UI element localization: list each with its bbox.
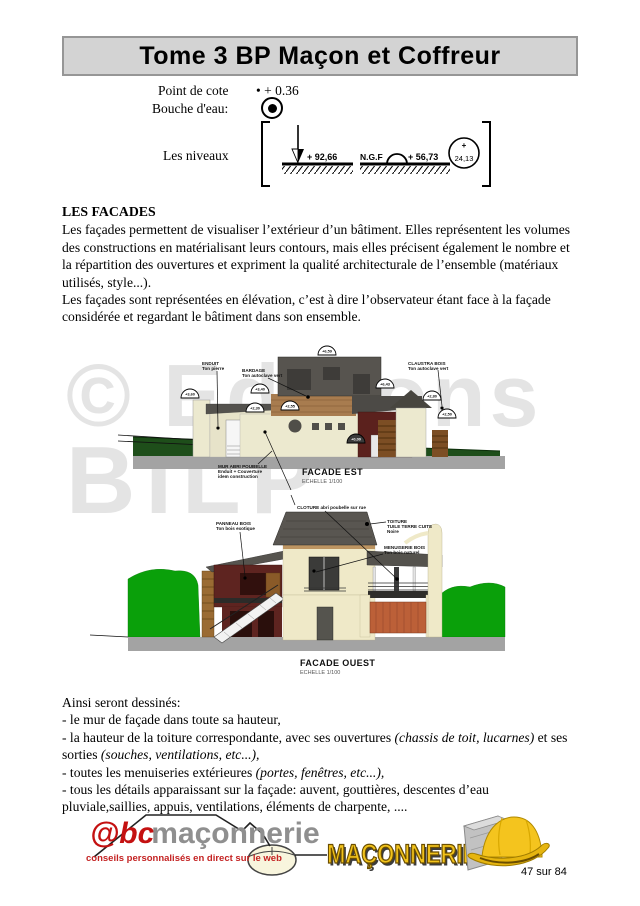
label-claustra-sub: Ton autoclave vert xyxy=(408,366,449,371)
facades-para1: Les façades permettent de visualiser l’e… xyxy=(62,221,579,291)
elevation-low-left: +2,30 xyxy=(250,406,260,411)
facade-ouest-drawing: CLOTURE abri poubelle sur rue TOITURE TU… xyxy=(90,495,510,680)
facade-ouest-title: FACADE OUEST xyxy=(300,658,375,668)
facade-est-title: FACADE EST xyxy=(302,467,363,477)
bracket-left xyxy=(262,122,270,186)
bullet2-italic-1: (chassis de toit, lucarnes) xyxy=(395,730,535,745)
hard-hat-graphic xyxy=(446,804,566,884)
bouche-eau-label: Bouche d'eau: xyxy=(152,101,228,117)
facade-est-drawing: +6,59 +6,43 +3,60 +3,40 +2,30 +2,55 +2,8… xyxy=(90,338,510,490)
label-enduit-sub: Ton pierre xyxy=(202,366,225,371)
label-mur-abri-3: idem construction xyxy=(218,474,258,479)
conclusion-bullet-2: - la hauteur de la toiture correspondant… xyxy=(62,729,579,764)
elevation-tower: +2,80 xyxy=(427,394,437,399)
label-toiture-3: Noire xyxy=(387,529,399,534)
document-page: Tome 3 BP Maçon et Coffreur Point de cot… xyxy=(0,0,640,906)
point-de-cote-label: Point de cote xyxy=(158,83,229,99)
bracket-right xyxy=(482,122,490,186)
circle-value: 24,13 xyxy=(455,154,474,163)
conclusion-intro: Ainsi seront dessinés: xyxy=(62,694,579,711)
bullet2-italic-2: (souches, ventilations, etc...), xyxy=(101,747,260,762)
label-menuiserie-2: Ton bois naturel xyxy=(384,550,419,555)
niveaux-diagram: + 92,66 N.G.F + 56,73 + 24,13 xyxy=(256,116,496,194)
niveaux-label: Les niveaux xyxy=(163,148,229,164)
conclusion-bullet-1: - le mur de façade dans toute sa hauteur… xyxy=(62,711,579,728)
abc-maconnerie-logo: @bcmaçonnerie conseils personnalisés en … xyxy=(84,803,329,881)
page-title: Tome 3 BP Maçon et Coffreur xyxy=(62,36,578,76)
facades-para2: Les façades sont représentées en élévati… xyxy=(62,291,579,326)
niveau1-value: + 92,66 xyxy=(307,152,337,162)
ngf-label: N.G.F xyxy=(360,152,383,162)
elevation-ground: +0,00 xyxy=(351,437,361,442)
bullet2-text: - la hauteur de la toiture correspondant… xyxy=(62,730,395,745)
bouche-eau-dot xyxy=(268,104,277,113)
bullet3-text: - toutes les menuiseries extérieures xyxy=(62,765,256,780)
facade-ouest-left-wing xyxy=(202,551,284,643)
bullet3-italic: (portes, fenêtres, etc...), xyxy=(256,765,385,780)
abc-logo-name: maçonnerie xyxy=(151,817,319,850)
abc-logo-at: @bc xyxy=(90,817,154,850)
conclusion-bullet-3: - toutes les menuiseries extérieures (po… xyxy=(62,764,579,781)
facade-est-scale: ECHELLE 1/100 xyxy=(302,479,342,485)
point-de-cote-value: • + 0.36 xyxy=(256,83,299,99)
elevation-mid-left: +3,40 xyxy=(255,387,265,392)
label-bardage-sub: Ton autoclave vert xyxy=(242,373,283,378)
abc-logo-text: @bcmaçonnerie xyxy=(90,819,320,849)
elevation-low-mid: +2,55 xyxy=(285,404,296,409)
elevation-right-roof: +6,43 xyxy=(380,382,391,387)
facade-ouest-scale: ECHELLE 1/100 xyxy=(300,670,340,676)
facades-heading: LES FACADES xyxy=(62,203,579,220)
elevation-left: +3,60 xyxy=(185,392,195,397)
abc-logo-tagline: conseils personnalisés en direct sur le … xyxy=(86,853,282,864)
facades-section: LES FACADES Les façades permettent de vi… xyxy=(62,203,579,326)
niveau-arrow-symbol xyxy=(282,125,353,174)
circle-plus: + xyxy=(462,141,467,150)
conclusion-section: Ainsi seront dessinés: - le mur de façad… xyxy=(62,694,579,816)
elevation-far-right: +2,50 xyxy=(442,412,452,417)
label-cloture: CLOTURE abri poubelle sur rue xyxy=(297,505,366,510)
niveau2-value: + 56,73 xyxy=(408,152,438,162)
elevation-top: +6,59 xyxy=(322,349,333,354)
facade-est-house xyxy=(193,357,448,457)
label-panneau-2: Ton bois exotique xyxy=(216,526,255,531)
